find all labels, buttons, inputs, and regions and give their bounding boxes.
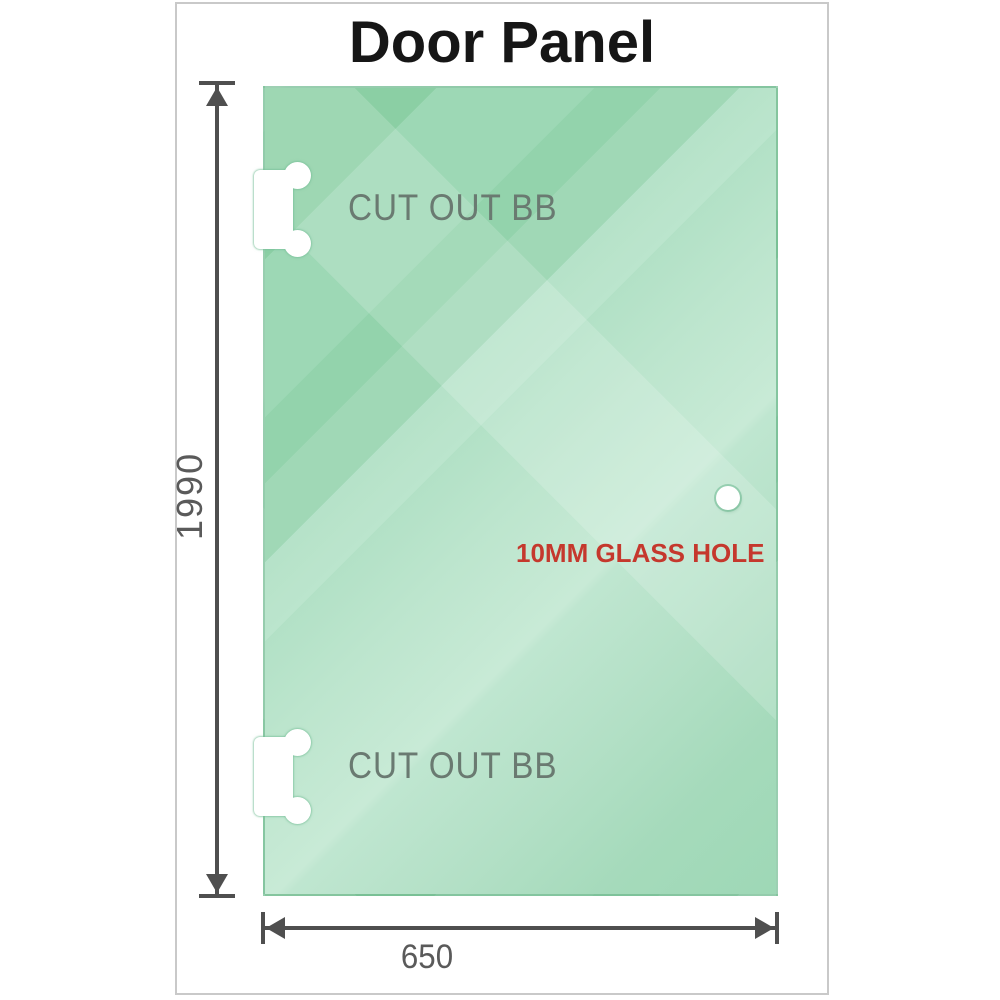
- height-dimension-label: 1990: [172, 460, 208, 540]
- height-dimension-line: [215, 85, 219, 895]
- glass-hole-label: 10MM GLASS HOLE: [516, 538, 736, 569]
- cutout-notch-bump-bottom: [284, 797, 311, 824]
- hinge-cutout-bottom: [254, 729, 311, 824]
- width-dimension-line: [264, 926, 776, 930]
- arrow-up-icon: [206, 87, 228, 106]
- arrow-down-icon: [206, 874, 228, 893]
- cutout-notch-bump-bottom: [284, 230, 311, 257]
- cutout-bottom-label: CUT OUT BB: [348, 745, 557, 787]
- arrow-left-icon: [266, 917, 285, 939]
- arrow-right-icon: [755, 917, 774, 939]
- cutout-notch-bump-top: [284, 729, 311, 756]
- page-title: Door Panel: [175, 10, 829, 80]
- cutout-top-label: CUT OUT BB: [348, 187, 557, 229]
- hinge-cutout-top: [254, 162, 311, 257]
- width-dimension-label: 650: [390, 938, 464, 977]
- glass-hole: [716, 486, 740, 510]
- cutout-notch-bump-top: [284, 162, 311, 189]
